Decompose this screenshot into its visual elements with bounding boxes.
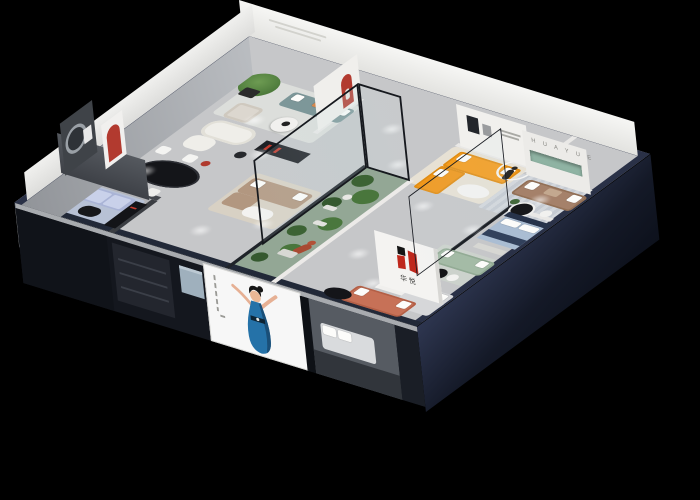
gray-cube-ottoman xyxy=(179,265,205,299)
shelf-line xyxy=(118,258,166,275)
red-arch-niche xyxy=(106,121,122,163)
spotlight-glow xyxy=(185,222,217,238)
side-table xyxy=(232,151,250,160)
dining-chair xyxy=(154,145,173,155)
showroom-render-stage: H U A Y U E xyxy=(0,0,700,500)
dining-chair xyxy=(180,154,199,164)
red-floor-lamp xyxy=(198,160,212,167)
poster-caption-marks xyxy=(213,275,225,318)
shelf-line xyxy=(119,272,167,289)
shelf-line xyxy=(121,286,169,303)
wall-deco-line xyxy=(269,19,327,39)
huayue-logo-text: 华悦 xyxy=(400,273,418,288)
wall-art-frame xyxy=(466,115,479,135)
logo-red-block xyxy=(397,255,406,269)
spotlight-glow xyxy=(343,246,375,262)
woman-figure xyxy=(232,278,282,360)
